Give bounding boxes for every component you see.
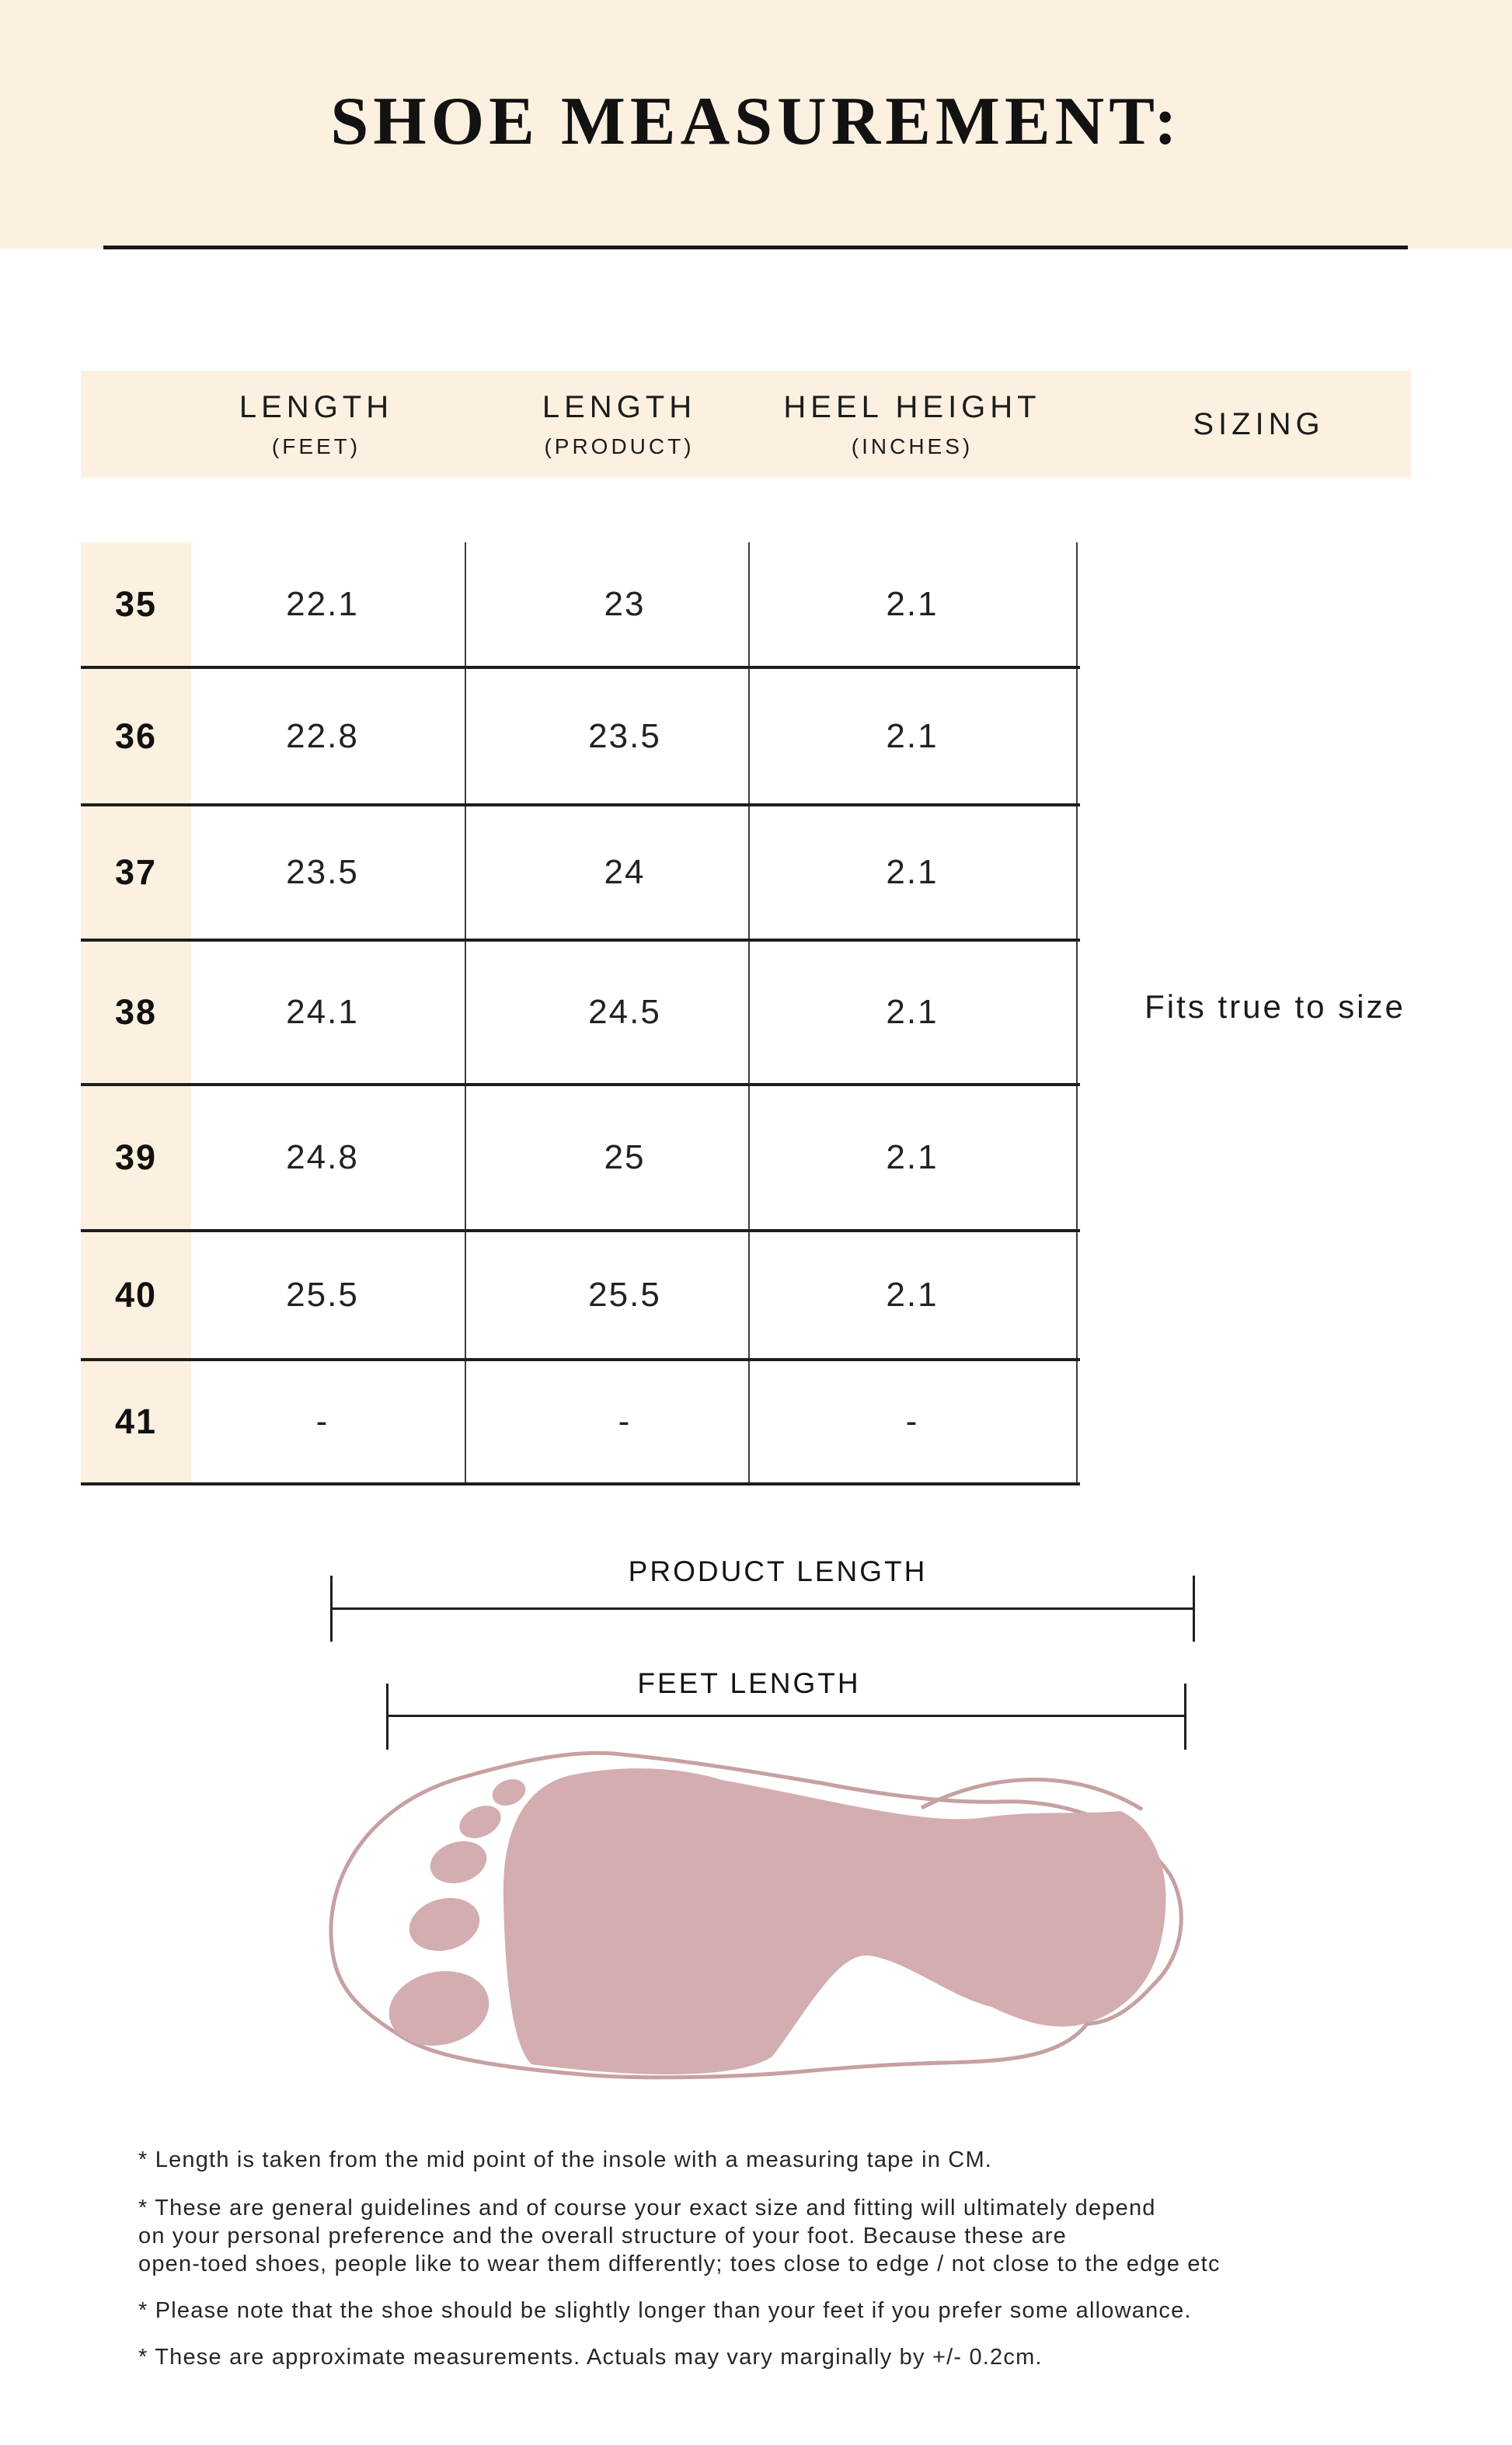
column-header-heel-height: HEEL HEIGHT (INCHES) [783,371,1040,478]
size-cell: 37 [115,852,157,893]
product-length-tick-left [330,1576,333,1642]
toe-4 [403,1890,486,1959]
footnote-line: * These are approximate measurements. Ac… [138,2343,1451,2371]
table-row: 41 - - - [81,1361,1080,1485]
table-row: 37 23.5 24 2.1 [81,806,1080,942]
table-row: 35 22.1 23 2.1 [81,542,1080,669]
size-cell: 35 [115,584,157,625]
column-header-sublabel: (FEET) [272,434,361,459]
column-header-label: HEEL HEIGHT [783,390,1040,425]
footnote-line: * These are general guidelines and of co… [138,2194,1451,2222]
table-row: 36 22.8 23.5 2.1 [81,669,1080,806]
column-header-sublabel: (INCHES) [852,434,973,459]
sizing-note: Fits true to size [1144,988,1406,1026]
footprint-illustration [329,1750,1192,2085]
page-title: SHOE MEASUREMENT: [0,82,1512,161]
heel-height-value: 2.1 [886,717,938,756]
size-cell: 40 [115,1275,157,1315]
product-length-value: 25 [604,1138,646,1177]
feet-length-tick-left [386,1684,388,1750]
table-row: 38 24.1 24.5 2.1 [81,942,1080,1086]
heel-height-value: 2.1 [886,993,938,1032]
product-length-line [330,1607,1194,1610]
product-length-value: 24.5 [588,993,661,1032]
heel-height-value: 2.1 [886,1276,938,1315]
footnote-line: * Please note that the shoe should be sl… [138,2297,1451,2325]
heel-height-value: 2.1 [886,585,938,624]
heel-height-value: - [906,1402,919,1441]
footnote-line: on your personal preference and the over… [138,2222,1451,2250]
feet-length-label: FEET LENGTH [637,1667,860,1700]
feet-length-value: 24.8 [286,1138,359,1177]
column-header-label: LENGTH [542,390,696,425]
size-cell: 41 [115,1402,157,1442]
heel-height-value: 2.1 [886,853,938,892]
product-length-value: 23 [604,585,646,624]
table-row: 40 25.5 25.5 2.1 [81,1232,1080,1361]
foot-outline-overlap-curve [921,1779,1142,1809]
footnote-item: * These are general guidelines and of co… [138,2194,1451,2278]
column-header-label: SIZING [1193,407,1324,442]
size-cell: 39 [115,1137,157,1178]
product-length-value: 24 [604,853,646,892]
footnote-item: * Please note that the shoe should be sl… [138,2297,1451,2325]
column-header-length-feet: LENGTH (FEET) [239,371,393,478]
product-length-value: - [618,1402,632,1441]
feet-length-value: 24.1 [286,993,359,1032]
toe-small-1 [489,1775,530,1810]
footnote-item: * Length is taken from the mid point of … [138,2146,1451,2174]
size-cell: 38 [115,992,157,1033]
table-row: 39 24.8 25 2.1 [81,1086,1080,1232]
footnote-item: * These are approximate measurements. Ac… [138,2343,1451,2371]
product-length-value: 25.5 [588,1276,661,1315]
column-header-sizing: SIZING [1193,371,1324,478]
feet-length-value: 23.5 [286,853,359,892]
size-cell: 36 [115,716,157,757]
feet-length-value: 22.8 [286,717,359,756]
feet-length-value: 22.1 [286,585,359,624]
heel-height-value: 2.1 [886,1138,938,1177]
column-header-label: LENGTH [239,390,393,425]
product-length-value: 23.5 [588,717,661,756]
footnotes: * Length is taken from the mid point of … [138,2146,1451,2390]
feet-length-value: 25.5 [286,1276,359,1315]
footnote-line: open-toed shoes, people like to wear the… [138,2250,1451,2278]
shoe-size-chart-page: SHOE MEASUREMENT: LENGTH (FEET) LENGTH (… [0,0,1512,2445]
toe-2 [455,1799,507,1844]
product-length-tick-right [1193,1576,1195,1642]
foot-sole-shape [503,1768,1166,2074]
feet-length-tick-right [1184,1684,1186,1750]
footnote-line: * Length is taken from the mid point of … [138,2146,1451,2174]
toe-3 [425,1835,491,1889]
feet-length-line [386,1715,1186,1717]
column-header-sublabel: (PRODUCT) [544,434,694,459]
title-underline [103,246,1408,249]
feet-length-value: - [316,1402,329,1441]
toe-big [382,1963,496,2055]
product-length-label: PRODUCT LENGTH [629,1555,928,1588]
column-header-length-product: LENGTH (PRODUCT) [542,371,696,478]
